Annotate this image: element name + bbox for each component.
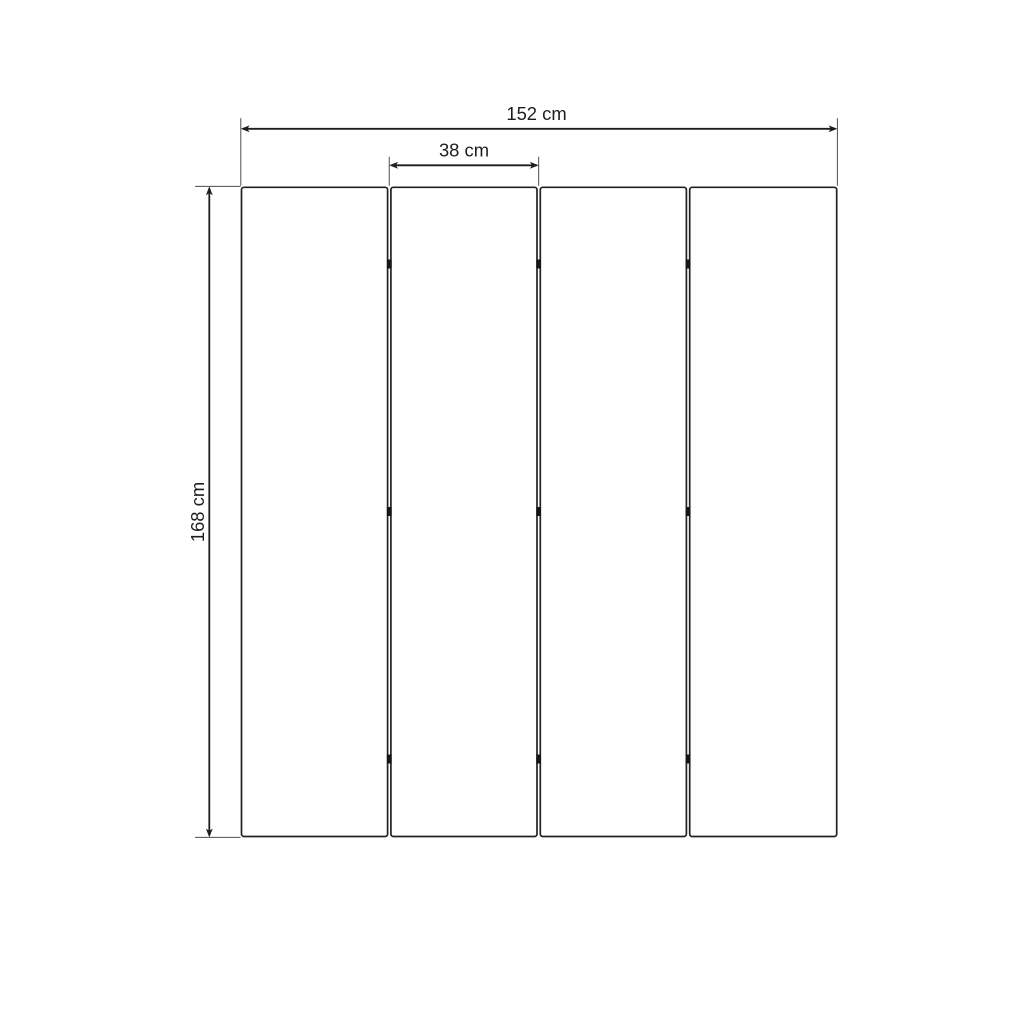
svg-text:152 cm: 152 cm — [506, 103, 566, 124]
svg-text:168 cm: 168 cm — [187, 482, 208, 542]
svg-text:38 cm: 38 cm — [439, 139, 489, 160]
